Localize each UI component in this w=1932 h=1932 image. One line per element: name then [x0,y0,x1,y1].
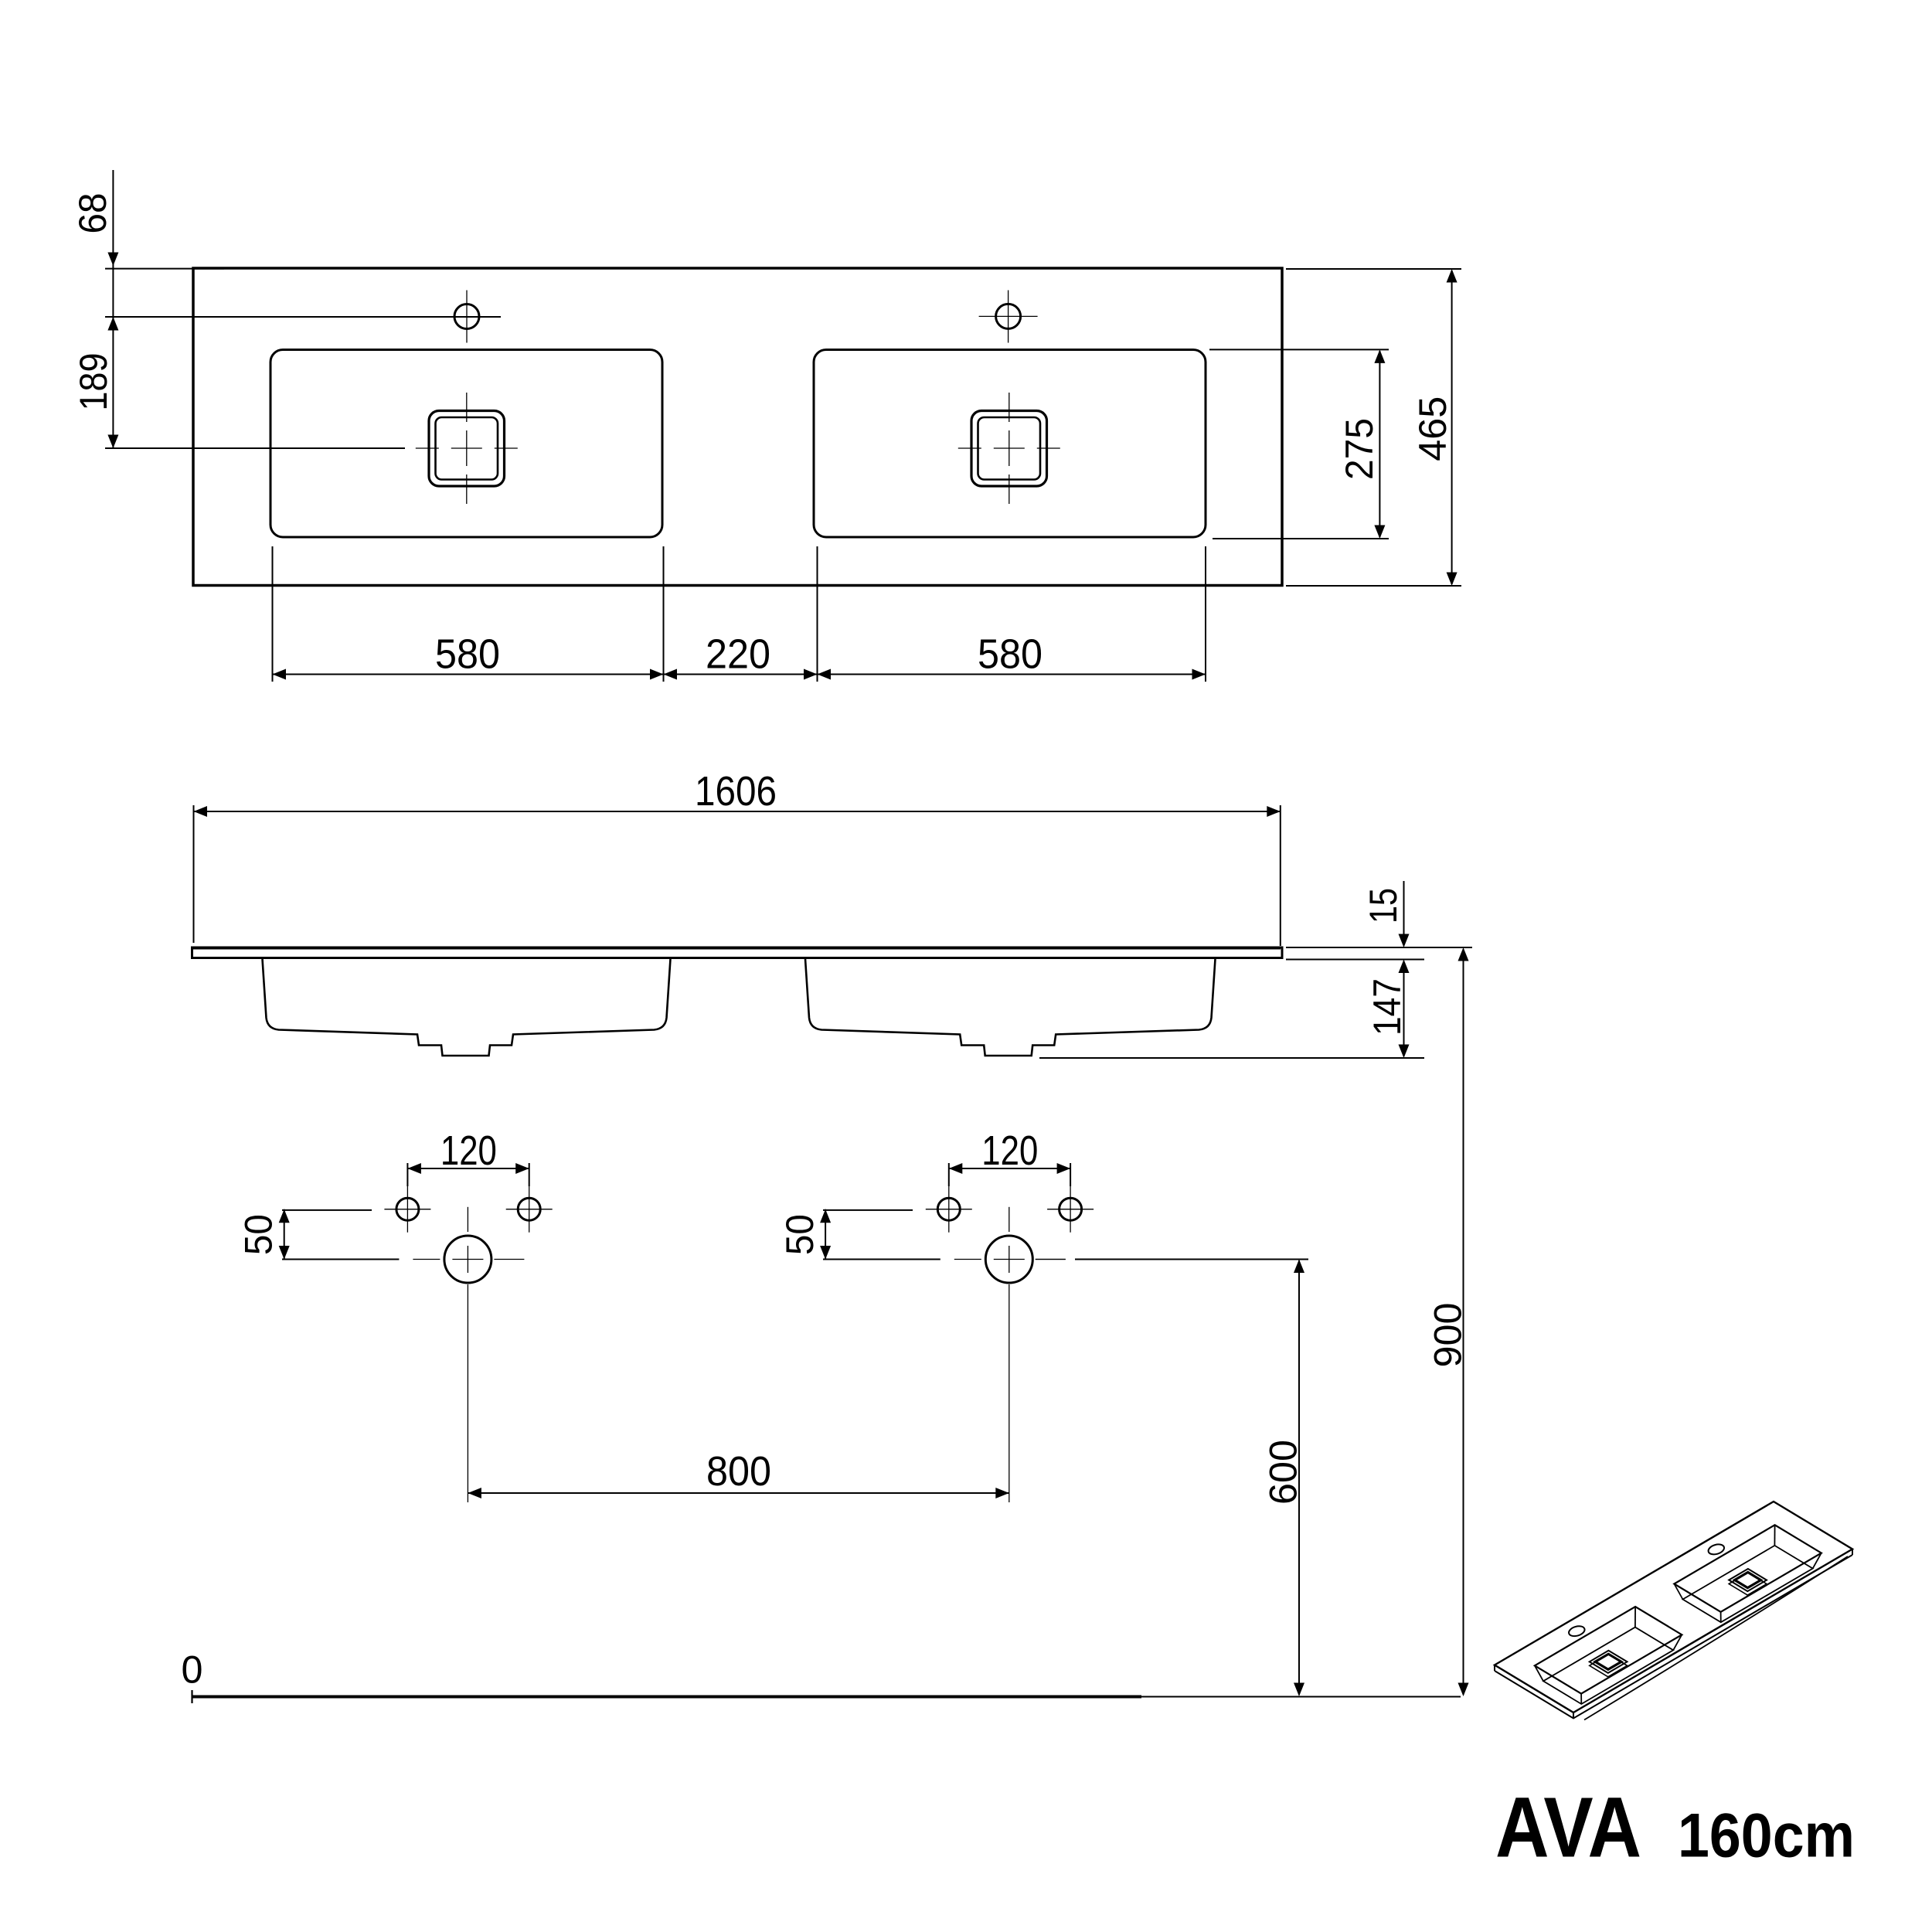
svg-text:120: 120 [440,1128,497,1174]
svg-text:465: 465 [1411,396,1454,461]
svg-text:147: 147 [1366,978,1409,1036]
svg-text:580: 580 [435,631,500,678]
svg-text:189: 189 [72,353,115,411]
svg-text:15: 15 [1362,888,1405,923]
svg-text:50: 50 [778,1214,821,1255]
svg-text:580: 580 [978,631,1043,678]
svg-text:220: 220 [706,631,770,678]
svg-text:1606: 1606 [695,768,777,815]
svg-text:600: 600 [1262,1440,1305,1505]
svg-text:160cm: 160cm [1678,1801,1855,1871]
svg-text:900: 900 [1427,1303,1470,1368]
svg-text:275: 275 [1338,418,1381,480]
svg-text:0: 0 [182,1648,203,1692]
svg-text:68: 68 [71,193,114,234]
svg-text:800: 800 [706,1448,771,1495]
svg-text:50: 50 [237,1214,281,1255]
svg-text:120: 120 [981,1128,1038,1174]
svg-text:AVA: AVA [1495,1781,1641,1876]
